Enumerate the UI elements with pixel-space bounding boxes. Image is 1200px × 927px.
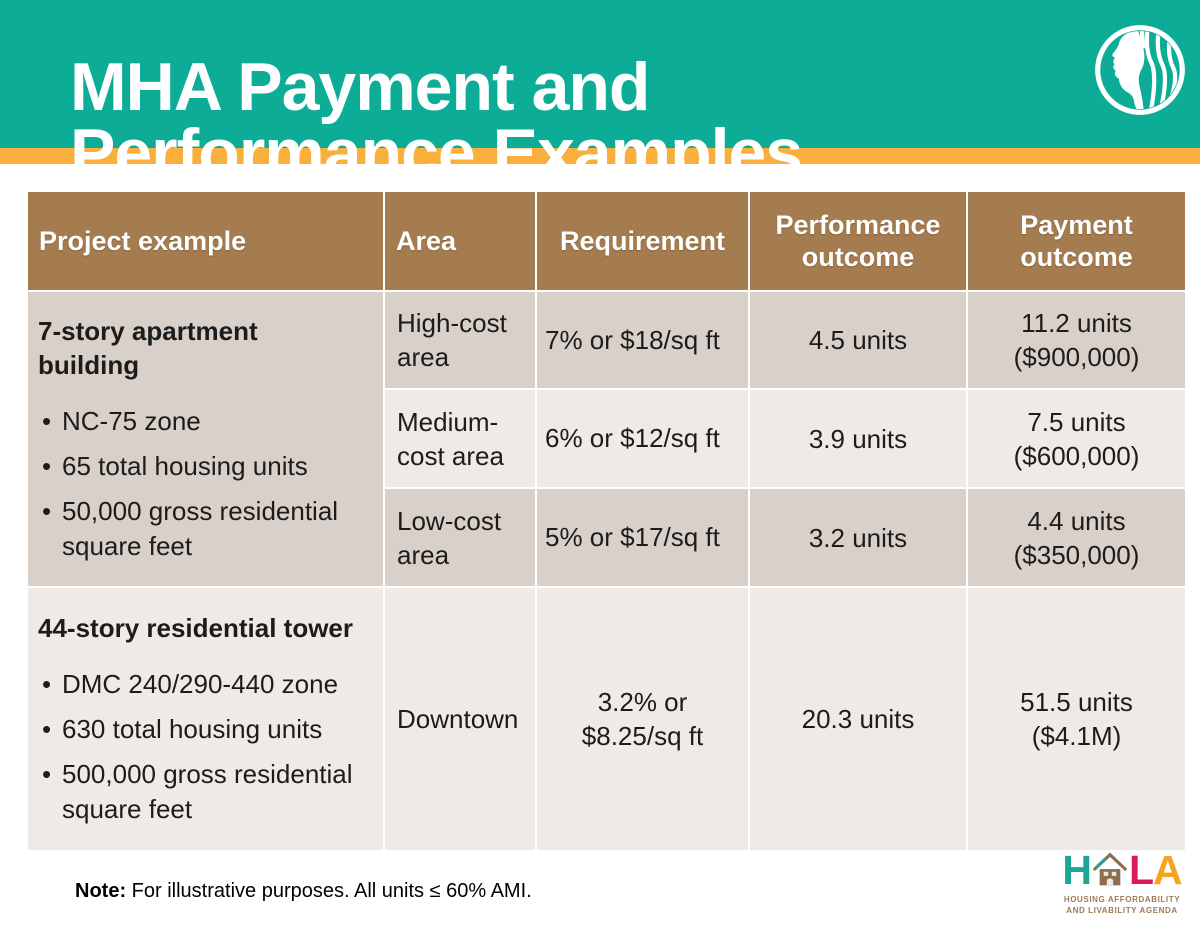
column-header-payment: Payment outcome <box>968 192 1185 290</box>
project-cell-tower: 44-story residential tower DMC 240/290-4… <box>28 588 383 850</box>
requirement-cell: 3.2% or $8.25/sq ft <box>537 588 748 850</box>
project-cell-apartment: 7-story apartment building NC-75 zone 65… <box>28 292 383 586</box>
area-cell: High-cost area <box>385 292 535 388</box>
project-bullet: 500,000 gross residential square feet <box>38 757 358 827</box>
project-bullet: DMC 240/290-440 zone <box>38 667 358 702</box>
requirement-percent: 3.2% or <box>582 685 703 719</box>
payment-amount: ($4.1M) <box>1020 719 1133 753</box>
performance-cell: 4.5 units <box>750 292 966 388</box>
project-bullet: NC-75 zone <box>38 404 358 439</box>
payment-amount: ($900,000) <box>1014 340 1140 374</box>
requirement-cell: 5% or $17/sq ft <box>537 489 748 586</box>
column-header-area: Area <box>385 192 535 290</box>
page-title: MHA Payment and Performance Examples <box>70 54 970 186</box>
payment-cell: 7.5 units ($600,000) <box>968 390 1185 487</box>
requirement-rate: $8.25/sq ft <box>582 719 703 753</box>
payment-amount: ($600,000) <box>1014 439 1140 473</box>
hala-logo: H L A HOUSING AFFORDABILITY AND LIVABILI… <box>1057 848 1187 916</box>
footnote-label: Note: <box>75 880 126 902</box>
footnote: Note: For illustrative purposes. All uni… <box>75 880 532 903</box>
payment-units: 4.4 units <box>1014 504 1140 538</box>
seattle-city-logo-icon <box>1093 23 1187 117</box>
footnote-text: For illustrative purposes. All units ≤ 6… <box>132 880 532 902</box>
payment-performance-table: Project example Area Requirement Perform… <box>28 192 1185 850</box>
column-header-project: Project example <box>28 192 383 290</box>
performance-cell: 20.3 units <box>750 588 966 850</box>
payment-cell: 4.4 units ($350,000) <box>968 489 1185 586</box>
project-bullet-list: DMC 240/290-440 zone 630 total housing u… <box>38 657 358 827</box>
payment-units: 51.5 units <box>1020 685 1133 719</box>
area-cell: Medium-cost area <box>385 390 535 487</box>
performance-cell: 3.2 units <box>750 489 966 586</box>
project-title: 44-story residential tower <box>38 611 358 645</box>
payment-amount: ($350,000) <box>1014 538 1140 572</box>
requirement-cell: 7% or $18/sq ft <box>537 292 748 388</box>
project-bullet: 50,000 gross residential square feet <box>38 494 358 564</box>
hala-house-icon <box>1092 850 1128 890</box>
hala-letter-a: A <box>1153 850 1182 890</box>
project-bullet: 630 total housing units <box>38 712 358 747</box>
hala-tagline-line1: HOUSING AFFORDABILITY <box>1057 894 1187 905</box>
area-cell: Low-cost area <box>385 489 535 586</box>
payment-cell: 51.5 units ($4.1M) <box>968 588 1185 850</box>
payment-units: 7.5 units <box>1014 405 1140 439</box>
hala-tagline-line2: AND LIVABILITY AGENDA <box>1057 905 1187 916</box>
payment-cell: 11.2 units ($900,000) <box>968 292 1185 388</box>
payment-units: 11.2 units <box>1014 306 1140 340</box>
column-header-performance: Performance outcome <box>750 192 966 290</box>
slide: MHA Payment and Performance Examples Pro… <box>0 0 1200 927</box>
hala-letter-l: L <box>1129 850 1153 890</box>
performance-cell: 3.9 units <box>750 390 966 487</box>
project-title: 7-story apartment building <box>38 314 358 382</box>
project-bullet-list: NC-75 zone 65 total housing units 50,000… <box>38 394 358 564</box>
area-cell: Downtown <box>385 588 535 850</box>
hala-wordmark: H L A <box>1057 848 1187 890</box>
requirement-cell: 6% or $12/sq ft <box>537 390 748 487</box>
hala-letter-h: H <box>1062 850 1091 890</box>
column-header-requirement: Requirement <box>537 192 748 290</box>
project-bullet: 65 total housing units <box>38 449 358 484</box>
